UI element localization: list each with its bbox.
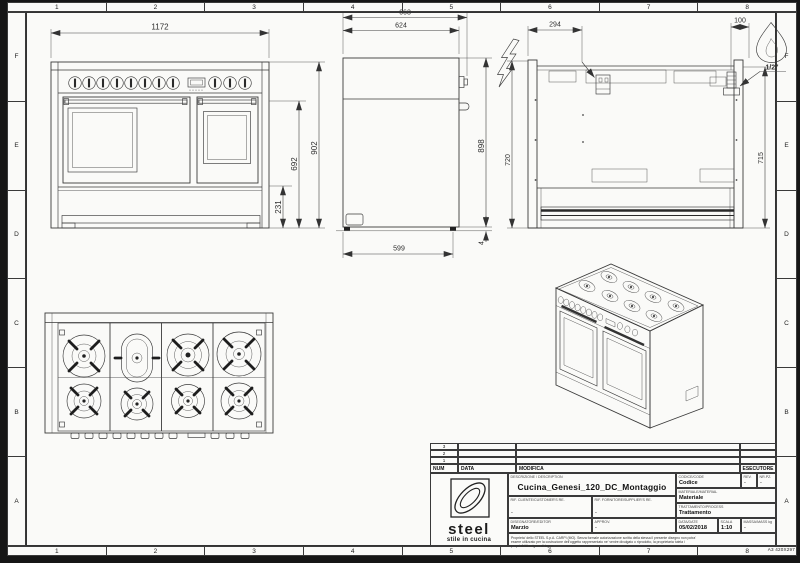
front-dimensions: 1172 902 692 231 (51, 23, 325, 229)
rev-row-num: 1 (430, 457, 458, 464)
front-view: 1172 902 692 231 (51, 23, 325, 229)
front-right-oven-door (197, 97, 258, 183)
rev-header-executor: ESECUTORE (740, 464, 776, 473)
dim-side-height: 898 (477, 139, 486, 153)
rev-header-modification: MODIFICA (516, 464, 740, 473)
wok-burner (167, 334, 209, 376)
steel-logo-mark (446, 477, 492, 521)
front-display (188, 78, 205, 91)
customer-ref-cell: RIF. CLIENTE/CUSTOMER'S RE. - (508, 496, 592, 518)
iso-left-door (560, 311, 597, 386)
top-view (45, 313, 273, 439)
date-value: 05/02/2018 (679, 525, 707, 531)
front-knob-row (69, 77, 252, 90)
nr-pz-cell: NR.PZ. - (757, 473, 776, 488)
mass-cell: MASSA/MASS kg - (741, 518, 776, 533)
gas-connection-callout: 1/2" (740, 65, 786, 87)
side-view: 663 624 898 4 599 (336, 10, 492, 259)
customer-ref-value: - (511, 510, 513, 516)
dim-gas-connection: 1/2" (765, 65, 778, 72)
iso-burners (577, 269, 685, 324)
iso-rating-plate (686, 386, 698, 401)
side-dimensions: 663 624 898 4 599 (343, 10, 492, 259)
isometric-view (556, 264, 703, 428)
dim-back-gas-offset: 100 (734, 18, 746, 25)
top-view-knob-tabs (71, 433, 249, 439)
material-value: Materiale (679, 495, 703, 501)
back-dimensions: 294 100 720 715 (505, 18, 770, 229)
back-electrical-box (596, 75, 610, 94)
dim-front-base-height: 231 (274, 200, 283, 214)
logo-name: steel (448, 522, 490, 537)
back-vent-slots (549, 70, 734, 182)
front-left-oven-door (63, 97, 190, 183)
supplier-ref-value: - (595, 510, 597, 516)
drawing-title: Cucina_Genesi_120_DC_Montaggio (509, 474, 675, 495)
dim-side-total-depth: 663 (399, 10, 411, 17)
side-foot-detail (346, 214, 363, 225)
burner (67, 384, 101, 418)
supplier-ref-cell: RIF. FORNITORE/SUPPLIER'S RE. - (592, 496, 676, 518)
rev-header-num: NUM (430, 464, 458, 473)
process-cell: TRATTAMENTO/PROCESS Trattamento (676, 503, 776, 518)
lightning-bolt-icon (498, 39, 520, 87)
side-knob-profile (459, 77, 464, 88)
approved-cell: APPROV. - (592, 518, 676, 533)
rev-value: - (744, 480, 746, 486)
editor-value: Marzio (511, 525, 529, 531)
back-screws (535, 99, 738, 181)
front-base-grille (62, 216, 260, 224)
code-cell: CODICE/CODE Codice (676, 473, 741, 488)
rev-row-num: 2 (430, 450, 458, 457)
mass-value: - (744, 525, 746, 531)
editor-cell: DISEGNATORE/EDITOR Marzio (508, 518, 592, 533)
drawing-sheet: 1 2 3 4 5 6 7 8 1 2 3 4 5 6 7 8 F E D C … (0, 0, 800, 563)
logo-tagline: stile in cucina (447, 537, 491, 543)
date-cell: DATA/DATE 05/02/2018 (676, 518, 718, 533)
flame-icon (757, 23, 787, 63)
rev-row-num: 3 (430, 443, 458, 450)
burner (121, 388, 153, 420)
oval-burner (115, 334, 159, 382)
front-oven-windows (68, 108, 251, 172)
burner (217, 332, 261, 376)
rev-cell: REV. - (741, 473, 757, 488)
code-value: Codice (679, 480, 698, 486)
dim-back-electric-offset: 294 (549, 22, 561, 29)
scale-value: 1:10 (721, 525, 732, 531)
dim-front-total-height: 902 (310, 141, 319, 155)
burner (63, 335, 105, 377)
side-handle-profile (459, 103, 469, 110)
back-base-band (541, 207, 734, 220)
rev-header-date: DATA (458, 464, 516, 473)
dim-side-base-depth: 599 (393, 246, 405, 253)
dim-front-width: 1172 (151, 23, 169, 32)
iso-knobs (558, 297, 638, 336)
material-cell: MATERIALE/MATERIAL Materiale (676, 488, 776, 503)
company-logo: steel stile in cucina (430, 473, 508, 546)
disclaimer-cell: Proprieta' dello STEEL S.p.A. CARPI (MO)… (508, 533, 776, 546)
dim-back-right-height: 715 (758, 152, 765, 164)
description-cell: DESCRIZIONE / DESCRIPTION Cucina_Genesi_… (508, 473, 676, 496)
dim-back-left-height: 720 (505, 154, 512, 166)
burners (63, 332, 261, 420)
title-block: 3 2 1 NUM DATA MODIFICA ESECUTORE steel … (430, 443, 776, 546)
scale-cell: SCALA 1:10 (718, 518, 741, 533)
approved-value: - (595, 525, 597, 531)
dim-side-body-depth: 624 (395, 23, 407, 30)
process-value: Trattamento (679, 510, 711, 516)
iso-right-handle (605, 327, 645, 345)
front-door-handles (64, 99, 256, 105)
proprietary-notice: Proprieta' dello STEEL S.p.A. CARPI (MO)… (509, 534, 775, 545)
burner (172, 385, 205, 418)
back-view: 294 100 720 715 1/2" (498, 18, 787, 229)
dim-side-foot-gap: 4 (479, 241, 486, 245)
burner (221, 383, 257, 419)
nr-pz-value: - (760, 480, 762, 486)
dim-front-body-height: 692 (290, 157, 299, 171)
